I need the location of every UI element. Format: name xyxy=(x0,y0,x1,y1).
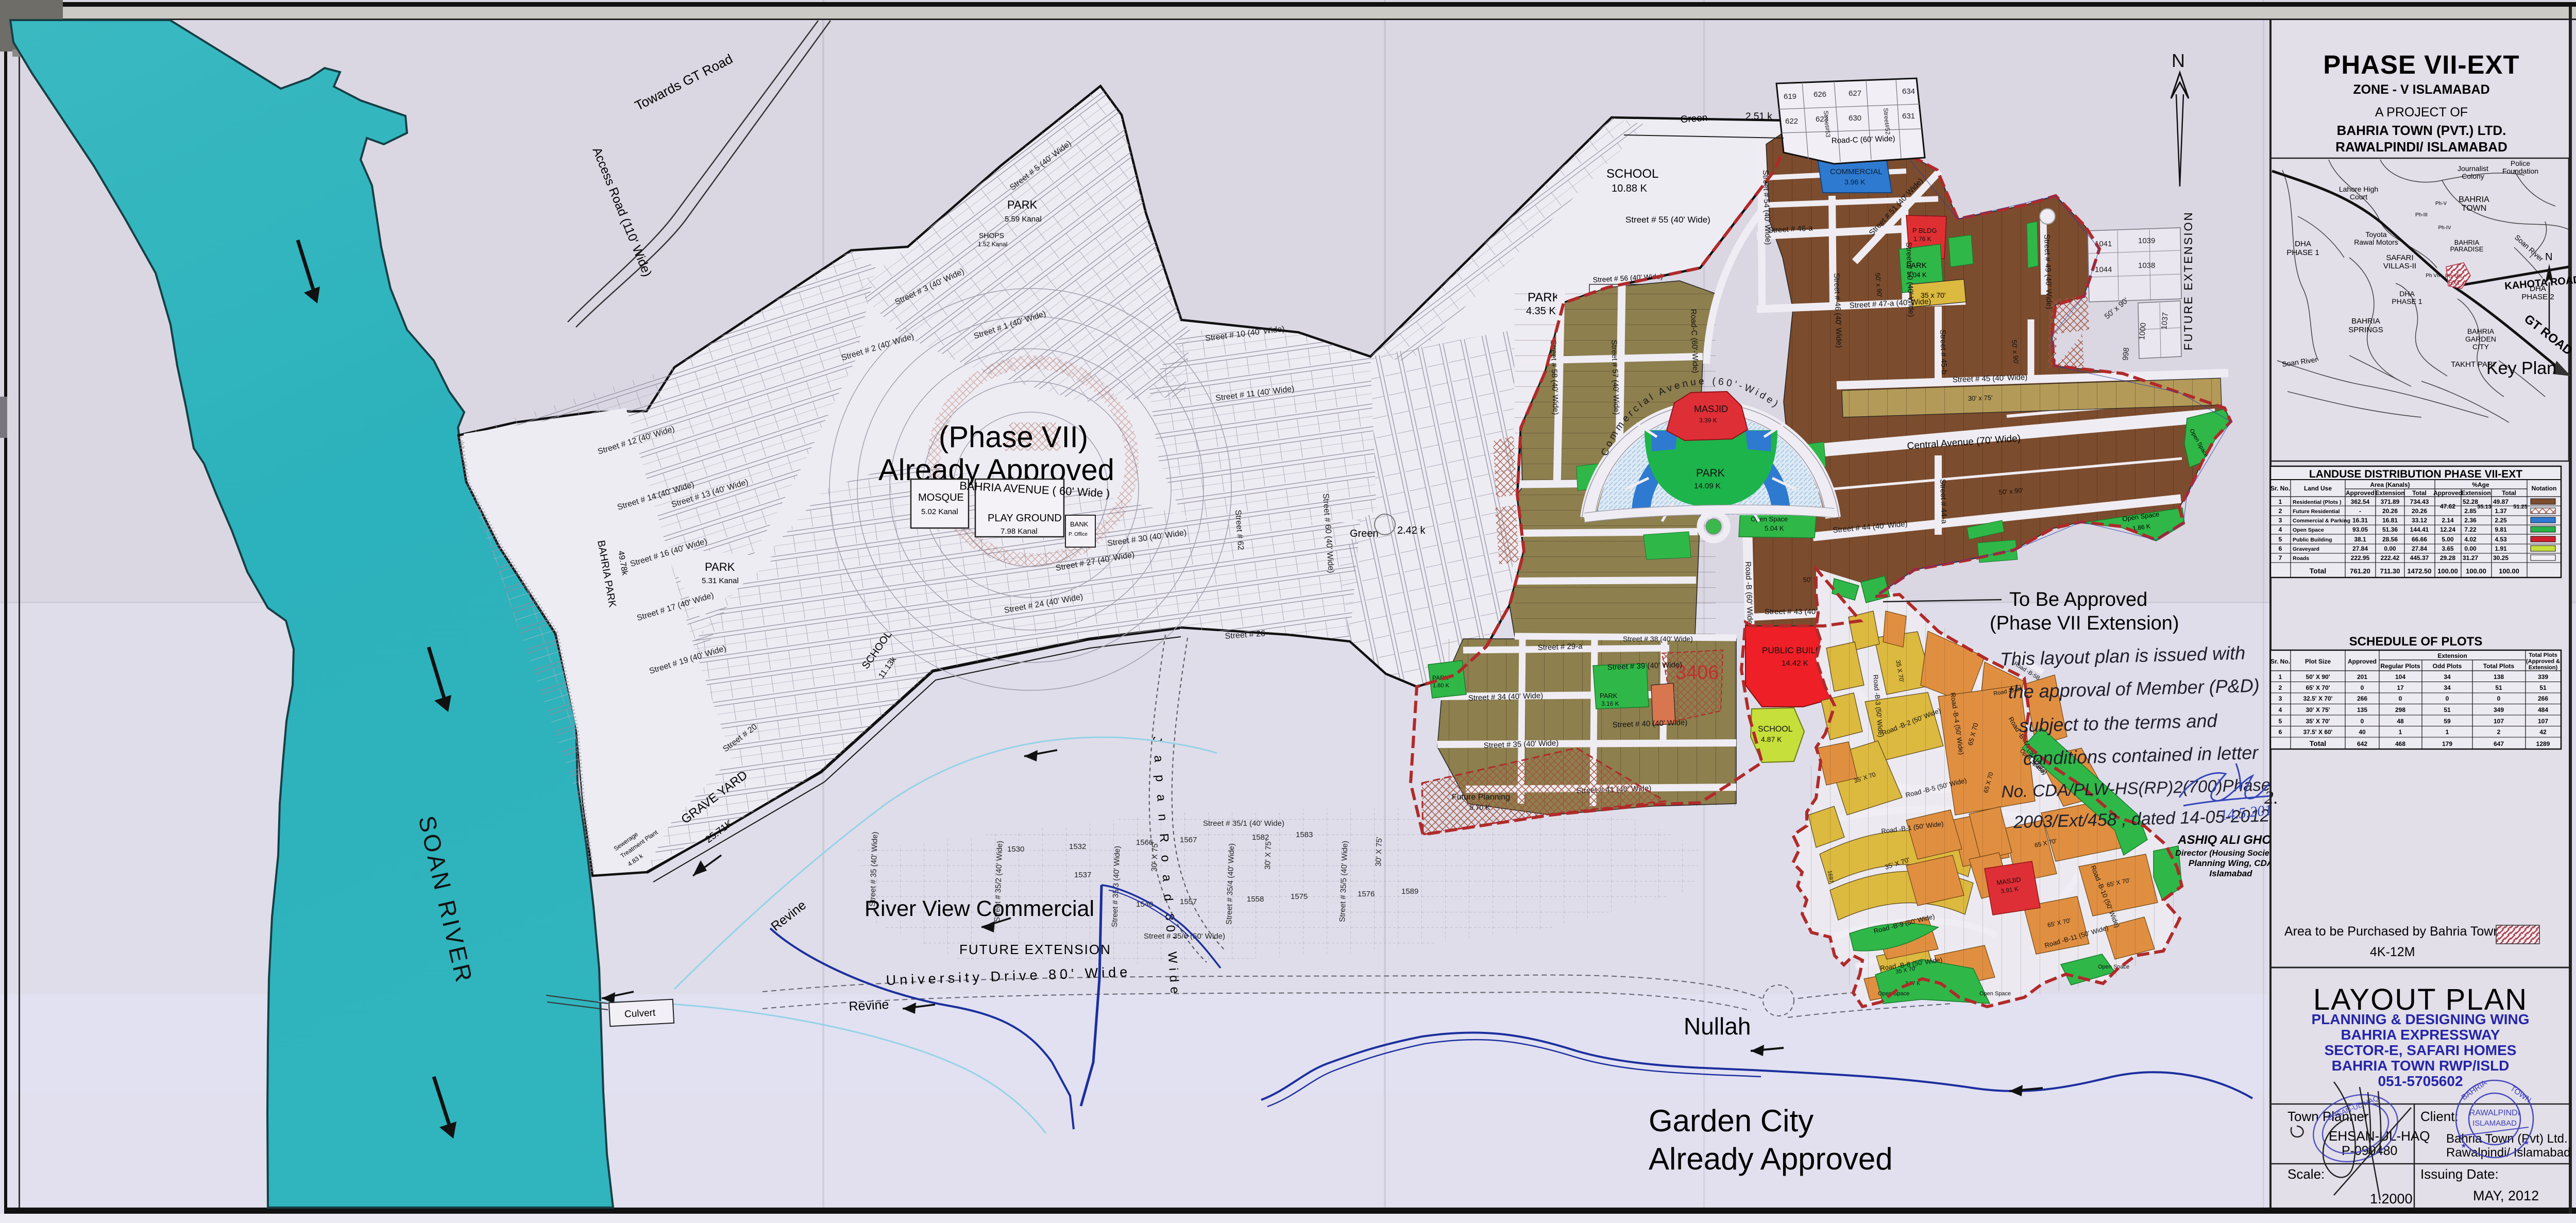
svg-text:SHOPS: SHOPS xyxy=(979,231,1004,240)
svg-text:3.39 K: 3.39 K xyxy=(1699,417,1717,424)
svg-text:1575: 1575 xyxy=(1291,892,1308,901)
svg-text:1: 1 xyxy=(2399,728,2402,736)
svg-text:9.81: 9.81 xyxy=(2495,526,2507,533)
svg-text:104: 104 xyxy=(2395,673,2405,681)
svg-text:Issuing Date:: Issuing Date: xyxy=(2420,1166,2499,1182)
svg-text:Scale:: Scale: xyxy=(2287,1166,2325,1182)
svg-text:622: 622 xyxy=(1785,117,1798,126)
svg-text:42: 42 xyxy=(2539,728,2547,736)
svg-text:Court: Court xyxy=(2350,193,2367,201)
svg-text:20.26: 20.26 xyxy=(2382,507,2398,515)
svg-text:468: 468 xyxy=(2395,740,2405,748)
svg-text:711.30: 711.30 xyxy=(2380,567,2400,575)
svg-text:2.14: 2.14 xyxy=(2442,517,2454,524)
svg-text:Total Plots: Total Plots xyxy=(2483,663,2515,670)
svg-text:371.89: 371.89 xyxy=(2381,498,2400,505)
svg-text:2.36: 2.36 xyxy=(2464,517,2477,524)
svg-text:3.65: 3.65 xyxy=(2442,545,2454,552)
svg-text:93.05: 93.05 xyxy=(2352,526,2368,533)
svg-text:MASJID: MASJID xyxy=(1694,404,1728,414)
svg-text:Plot Size: Plot Size xyxy=(2305,658,2331,665)
svg-text:SCHOOL: SCHOOL xyxy=(1758,725,1793,734)
svg-text:6: 6 xyxy=(2279,545,2282,552)
svg-text:Journalist: Journalist xyxy=(2458,164,2488,173)
svg-text:222.95: 222.95 xyxy=(2351,554,2370,562)
svg-text:★: ★ xyxy=(2523,1139,2530,1146)
svg-text:Rawal Motors: Rawal Motors xyxy=(2354,238,2398,246)
svg-text:17: 17 xyxy=(2397,684,2404,691)
svg-text:GARDEN: GARDEN xyxy=(2465,335,2496,343)
svg-text:Extension): Extension) xyxy=(2529,665,2558,671)
svg-text:Total: Total xyxy=(2412,489,2427,497)
svg-text:1039: 1039 xyxy=(2138,236,2155,245)
svg-text:Street # 45-b: Street # 45-b xyxy=(1938,330,1948,375)
svg-text:10.88 K: 10.88 K xyxy=(1612,183,1648,194)
svg-text:14.42 K: 14.42 K xyxy=(1782,659,1808,668)
svg-text:2: 2 xyxy=(2279,507,2282,515)
svg-text:34: 34 xyxy=(2444,673,2451,681)
svg-text:Extension: Extension xyxy=(2437,652,2467,659)
svg-text:31.27: 31.27 xyxy=(2463,554,2478,562)
svg-text:2.25: 2.25 xyxy=(2495,517,2507,524)
svg-text:RAWALPINDI: RAWALPINDI xyxy=(2469,1109,2520,1117)
svg-text:Ph VII: Ph VII xyxy=(2445,273,2462,280)
svg-text:3.16 K: 3.16 K xyxy=(1601,700,1619,707)
svg-text:107: 107 xyxy=(2494,718,2504,725)
svg-text:30' X 75': 30' X 75' xyxy=(2306,706,2330,714)
svg-text:27.84: 27.84 xyxy=(2412,545,2427,552)
svg-text:(Approved &: (Approved & xyxy=(2526,658,2560,665)
svg-text:SCHEDULE OF PLOTS: SCHEDULE OF PLOTS xyxy=(2349,635,2483,649)
svg-text:0: 0 xyxy=(2497,695,2501,702)
svg-text:7.22: 7.22 xyxy=(2464,526,2477,533)
svg-text:Ph-V: Ph-V xyxy=(2435,201,2447,207)
svg-text:1289: 1289 xyxy=(2536,740,2550,748)
svg-text:-: - xyxy=(2359,507,2361,515)
svg-text:3: 3 xyxy=(2279,517,2282,524)
svg-text:630: 630 xyxy=(1849,114,1861,123)
svg-text:SECTOR-E, SAFARI HOMES: SECTOR-E, SAFARI HOMES xyxy=(2325,1042,2517,1058)
svg-text:P BLDG: P BLDG xyxy=(1912,227,1937,234)
svg-text:TOWN: TOWN xyxy=(2462,204,2487,213)
svg-text:DHA: DHA xyxy=(2295,240,2311,248)
svg-text:647: 647 xyxy=(2494,740,2504,748)
svg-text:29.28: 29.28 xyxy=(2440,554,2455,562)
svg-text:5: 5 xyxy=(2279,536,2282,543)
svg-text:1037: 1037 xyxy=(2160,312,2170,330)
svg-text:1576: 1576 xyxy=(1358,890,1375,898)
svg-text:PARK: PARK xyxy=(1696,467,1725,479)
svg-text:38.1: 38.1 xyxy=(2354,536,2366,543)
svg-text:Approved: Approved xyxy=(2348,658,2377,665)
svg-text:N: N xyxy=(2172,50,2185,71)
svg-text:59: 59 xyxy=(2444,718,2451,725)
svg-text:2.51 k: 2.51 k xyxy=(1745,111,1772,122)
svg-text:PARADISE: PARADISE xyxy=(2450,245,2484,253)
svg-text:Approved: Approved xyxy=(2433,489,2462,497)
svg-text:28.56: 28.56 xyxy=(2382,536,2398,543)
svg-text:634: 634 xyxy=(1902,87,1915,96)
svg-text:VILLAS-II: VILLAS-II xyxy=(2383,262,2416,270)
svg-text:16.81: 16.81 xyxy=(2382,517,2398,524)
svg-text:Garden City: Garden City xyxy=(1649,1103,1814,1138)
svg-text:1532: 1532 xyxy=(1069,842,1086,851)
svg-text:SPRINGS: SPRINGS xyxy=(2348,326,2383,334)
svg-text:1589: 1589 xyxy=(1401,887,1418,896)
svg-text:30.25: 30.25 xyxy=(2493,554,2509,562)
svg-text:FUTURE EXTENSION: FUTURE EXTENSION xyxy=(2182,211,2195,350)
svg-text:2: 2 xyxy=(2279,684,2282,691)
svg-text:EXT.: EXT. xyxy=(2448,279,2461,286)
svg-text:7.98 Kanal: 7.98 Kanal xyxy=(1001,527,1038,536)
svg-text:642: 642 xyxy=(2357,740,2367,748)
svg-text:Regular Plots: Regular Plots xyxy=(2380,663,2420,670)
svg-text:35' X 70': 35' X 70' xyxy=(2306,718,2330,725)
svg-text:12.24: 12.24 xyxy=(2440,526,2455,533)
svg-text:1.80 K: 1.80 K xyxy=(1433,683,1449,689)
svg-text:BAHRIA: BAHRIA xyxy=(2467,327,2495,335)
svg-text:27.84: 27.84 xyxy=(2352,545,2368,552)
svg-text:2.: 2. xyxy=(2264,787,2278,808)
svg-text:32.5' X 70': 32.5' X 70' xyxy=(2303,695,2332,702)
svg-text:5.00: 5.00 xyxy=(2442,536,2454,543)
svg-text:144.41: 144.41 xyxy=(2410,526,2429,533)
svg-text:(Phase VII Extension): (Phase VII Extension) xyxy=(1990,613,2179,634)
svg-text:Area to be Purchased by Bahria: Area to be Purchased by Bahria Town xyxy=(2284,924,2500,939)
svg-text:Client:: Client: xyxy=(2420,1109,2459,1124)
svg-text:1472.50: 1472.50 xyxy=(2408,567,2432,575)
svg-text:0: 0 xyxy=(2399,695,2402,702)
svg-text:1: 1 xyxy=(2279,673,2282,681)
svg-text:Street # 29-a: Street # 29-a xyxy=(1538,642,1583,652)
svg-text:47.62: 47.62 xyxy=(2440,503,2455,510)
svg-text:Nullah: Nullah xyxy=(1684,1013,1751,1040)
svg-text:RAWALPINDI/ ISLAMABAD: RAWALPINDI/ ISLAMABAD xyxy=(2335,139,2507,155)
svg-text:100.00: 100.00 xyxy=(2466,567,2486,575)
svg-text:1.76 K: 1.76 K xyxy=(1913,235,1931,243)
svg-text:7: 7 xyxy=(2279,554,2282,562)
svg-text:1038: 1038 xyxy=(2138,261,2155,270)
svg-text:49.87: 49.87 xyxy=(2493,498,2509,505)
svg-text:1.52 Kanal: 1.52 Kanal xyxy=(978,241,1007,248)
svg-text:33.12: 33.12 xyxy=(2412,517,2427,524)
svg-text:PARK: PARK xyxy=(1600,692,1618,700)
svg-text:Extension: Extension xyxy=(2461,489,2490,497)
svg-text:627: 627 xyxy=(1849,89,1861,98)
svg-text:Graveyard: Graveyard xyxy=(2293,546,2319,552)
svg-text:Notation: Notation xyxy=(2532,485,2557,492)
svg-text:MOSQUE: MOSQUE xyxy=(918,492,964,503)
svg-text:BAHRIA: BAHRIA xyxy=(2459,195,2489,204)
svg-text:Green: Green xyxy=(1680,112,1708,125)
svg-text:4K-12M: 4K-12M xyxy=(2370,945,2415,959)
svg-text:Already Approved: Already Approved xyxy=(1649,1142,1893,1176)
svg-text:Land Use: Land Use xyxy=(2304,485,2332,492)
svg-text:Total: Total xyxy=(2310,739,2326,748)
svg-text:Revine: Revine xyxy=(849,997,889,1014)
svg-text:Colony: Colony xyxy=(2462,172,2484,180)
svg-text:51.36: 51.36 xyxy=(2382,526,2398,533)
svg-text:Ph-IV: Ph-IV xyxy=(2438,225,2451,231)
svg-text:201: 201 xyxy=(2357,673,2367,681)
svg-text:1: 1 xyxy=(2279,498,2282,505)
svg-text:298: 298 xyxy=(2395,706,2405,714)
svg-text:N: N xyxy=(2545,251,2552,263)
svg-text:MAY, 2012: MAY, 2012 xyxy=(2473,1188,2539,1203)
svg-text:52.28: 52.28 xyxy=(2463,498,2478,505)
svg-text:SCHOOL: SCHOOL xyxy=(1606,167,1658,181)
svg-text:To Be Approved: To Be Approved xyxy=(2009,589,2147,610)
svg-text:4.87 K: 4.87 K xyxy=(1761,735,1782,743)
svg-text:River View Commercial: River View Commercial xyxy=(865,896,1094,921)
svg-text:998: 998 xyxy=(2121,347,2131,361)
svg-text:48: 48 xyxy=(2397,718,2404,725)
svg-text:Odd Plots: Odd Plots xyxy=(2433,663,2462,670)
svg-text:55.13: 55.13 xyxy=(2477,504,2492,510)
svg-text:266: 266 xyxy=(2538,695,2548,702)
svg-text:4.02: 4.02 xyxy=(2464,536,2477,543)
svg-text:Sr. No.: Sr. No. xyxy=(2270,658,2290,665)
svg-text:PLAY GROUND: PLAY GROUND xyxy=(988,513,1062,524)
svg-text:(Phase VII): (Phase VII) xyxy=(939,420,1088,454)
svg-text:5.02 Kanal: 5.02 Kanal xyxy=(921,507,958,516)
svg-text:ISLAMABAD: ISLAMABAD xyxy=(2472,1119,2517,1128)
svg-text:PHASE 1: PHASE 1 xyxy=(2286,248,2319,257)
svg-text:1567: 1567 xyxy=(1180,836,1197,844)
svg-text:ZONE - V ISLAMABAD: ZONE - V ISLAMABAD xyxy=(2353,82,2489,97)
svg-text:Future Planning: Future Planning xyxy=(1452,793,1510,802)
svg-text:ASHIQ ALI GHORI: ASHIQ ALI GHORI xyxy=(2177,833,2284,847)
svg-text:266: 266 xyxy=(2357,695,2367,702)
svg-text:4: 4 xyxy=(2279,526,2282,533)
svg-text:349: 349 xyxy=(2494,706,2504,714)
svg-text:BAHRIA EXPRESSWAY: BAHRIA EXPRESSWAY xyxy=(2341,1027,2500,1043)
svg-text:0: 0 xyxy=(2446,695,2449,702)
svg-text:100.00: 100.00 xyxy=(2499,567,2519,575)
svg-text:Foundation: Foundation xyxy=(2502,167,2538,175)
svg-text:★: ★ xyxy=(2461,1142,2467,1149)
svg-text:Total Plots: Total Plots xyxy=(2529,652,2557,658)
svg-text:BAHRIA TOWN (PVT.) LTD.: BAHRIA TOWN (PVT.) LTD. xyxy=(2337,123,2506,138)
svg-text:P. Office: P. Office xyxy=(1069,532,1088,537)
svg-text:PARK: PARK xyxy=(705,560,735,573)
svg-text:Green: Green xyxy=(1350,528,1379,539)
svg-text:51.25: 51.25 xyxy=(2513,504,2528,510)
svg-text:LANDUSE DISTRIBUTION PHASE VII: LANDUSE DISTRIBUTION PHASE VII-EXT xyxy=(2309,468,2522,480)
svg-text:1583: 1583 xyxy=(1296,830,1313,839)
svg-text:Roads: Roads xyxy=(2293,555,2309,562)
svg-text:3: 3 xyxy=(2279,695,2282,702)
svg-text:65' X 70': 65' X 70' xyxy=(2306,684,2330,691)
svg-text:51: 51 xyxy=(2495,684,2502,691)
svg-text:107: 107 xyxy=(2538,718,2548,725)
svg-text:Total: Total xyxy=(2310,567,2326,575)
svg-text:1.91: 1.91 xyxy=(2495,545,2507,552)
svg-text:6: 6 xyxy=(2279,728,2282,736)
svg-text:1.37: 1.37 xyxy=(2495,507,2507,515)
svg-text:40: 40 xyxy=(2359,728,2366,736)
svg-text:222.42: 222.42 xyxy=(2381,554,2400,562)
svg-text:100.00: 100.00 xyxy=(2437,567,2458,575)
svg-text:PLANNING & DESIGNING WING: PLANNING & DESIGNING WING xyxy=(2311,1011,2529,1027)
svg-text:619: 619 xyxy=(1784,92,1797,101)
svg-text:20.26: 20.26 xyxy=(2412,507,2427,515)
svg-text:0.00: 0.00 xyxy=(2464,545,2477,552)
svg-text:0.00: 0.00 xyxy=(2384,545,2396,552)
svg-text:Planning Wing, CDA: Planning Wing, CDA xyxy=(2189,858,2273,868)
svg-text:COMMERCIAL: COMMERCIAL xyxy=(1830,167,1883,176)
svg-text:BAHRIA TOWN RWP/ISLD: BAHRIA TOWN RWP/ISLD xyxy=(2332,1058,2510,1074)
svg-text:484: 484 xyxy=(2538,706,2548,714)
svg-text:PHASE VII-EXT: PHASE VII-EXT xyxy=(2323,50,2519,79)
svg-text:Residential (Plots ): Residential (Plots ) xyxy=(2293,499,2342,505)
svg-text:%Age: %Age xyxy=(2472,481,2489,488)
svg-text:CITY: CITY xyxy=(2472,343,2489,351)
svg-text:1000: 1000 xyxy=(2138,322,2148,341)
svg-text:30' X 75': 30' X 75' xyxy=(1263,840,1273,870)
svg-text:1: 1 xyxy=(2446,728,2449,736)
svg-text:Street # 55 (40' Wide): Street # 55 (40' Wide) xyxy=(1625,215,1710,225)
svg-text:1530: 1530 xyxy=(1007,845,1024,854)
svg-text:FUTURE EXTENSION: FUTURE EXTENSION xyxy=(959,942,1111,957)
svg-text:Police: Police xyxy=(2511,159,2530,167)
svg-text:51: 51 xyxy=(2539,684,2547,691)
svg-text:0: 0 xyxy=(2361,718,2364,725)
svg-text:37.5' X 60': 37.5' X 60' xyxy=(2303,728,2332,736)
svg-text:734.43: 734.43 xyxy=(2410,498,2429,505)
svg-text:5.04 K: 5.04 K xyxy=(1765,524,1784,532)
svg-text:BAHRIA: BAHRIA xyxy=(2351,317,2380,326)
svg-text:5: 5 xyxy=(2279,718,2282,725)
svg-text:Total: Total xyxy=(2502,489,2516,497)
svg-text:3.96 K: 3.96 K xyxy=(1844,178,1866,186)
svg-text:Open Space: Open Space xyxy=(1979,991,2011,997)
svg-text:Lahore High: Lahore High xyxy=(2339,185,2378,193)
svg-text:34: 34 xyxy=(2444,684,2451,691)
svg-text:Public Building: Public Building xyxy=(2293,537,2332,543)
svg-text:362.54: 362.54 xyxy=(2351,498,2370,505)
svg-text:5.59 Kanal: 5.59 Kanal xyxy=(1005,215,1042,224)
svg-text:445.37: 445.37 xyxy=(2410,554,2429,562)
svg-text:30' x 75': 30' x 75' xyxy=(1968,394,1993,402)
svg-text:51: 51 xyxy=(2444,706,2451,714)
svg-text:PARK: PARK xyxy=(1007,198,1038,211)
svg-text:1557: 1557 xyxy=(1180,897,1197,906)
svg-text:2: 2 xyxy=(2497,728,2501,736)
svg-text:179: 179 xyxy=(2442,740,2452,748)
svg-text:Commercial & Parking: Commercial & Parking xyxy=(2293,518,2350,524)
svg-text:14.09 K: 14.09 K xyxy=(1694,482,1721,490)
svg-text:Street # 44-a: Street # 44-a xyxy=(1938,479,1948,524)
svg-text:135: 135 xyxy=(2357,706,2367,714)
svg-text:50' X 90': 50' X 90' xyxy=(2306,673,2330,681)
svg-text:5.70 K: 5.70 K xyxy=(1469,803,1490,811)
svg-text:339: 339 xyxy=(2538,673,2548,681)
svg-text:0: 0 xyxy=(2361,684,2364,691)
svg-text:4: 4 xyxy=(2279,706,2282,714)
svg-text:Area (Kanals): Area (Kanals) xyxy=(2370,481,2410,488)
svg-text:BANK: BANK xyxy=(1070,520,1089,528)
svg-text:DHA: DHA xyxy=(2399,290,2415,298)
svg-text:Street # 35/1 (40' Wide): Street # 35/1 (40' Wide) xyxy=(1203,819,1284,828)
svg-text:761.20: 761.20 xyxy=(2350,567,2370,575)
svg-text:Toyota: Toyota xyxy=(2365,230,2386,239)
svg-text:1537: 1537 xyxy=(1074,871,1091,879)
svg-text:2.85: 2.85 xyxy=(2464,507,2477,515)
svg-text:Ph-III: Ph-III xyxy=(2415,212,2428,218)
svg-text:30' X 75': 30' X 75' xyxy=(1374,837,1384,867)
svg-text:16.31: 16.31 xyxy=(2352,517,2368,524)
svg-text:4.53: 4.53 xyxy=(2495,536,2507,543)
svg-text:1:2000: 1:2000 xyxy=(2370,1191,2413,1207)
svg-text:138: 138 xyxy=(2494,673,2504,681)
svg-text:631: 631 xyxy=(1902,112,1915,121)
svg-text:Future Residential: Future Residential xyxy=(2293,508,2340,515)
svg-text:1558: 1558 xyxy=(1247,895,1264,904)
svg-text:SAFARI: SAFARI xyxy=(2386,253,2413,262)
svg-text:Approved: Approved xyxy=(2346,489,2375,497)
svg-text:Islamabad: Islamabad xyxy=(2209,869,2252,878)
svg-text:66.66: 66.66 xyxy=(2412,536,2427,543)
svg-text:1044: 1044 xyxy=(2095,265,2112,274)
svg-text:Street # 38 (40' Wide): Street # 38 (40' Wide) xyxy=(1623,635,1693,643)
svg-text:A PROJECT OF: A PROJECT OF xyxy=(2375,105,2468,120)
svg-text:626: 626 xyxy=(1814,90,1826,99)
svg-text:Extension: Extension xyxy=(2375,489,2404,497)
svg-text:051-5705602: 051-5705602 xyxy=(2378,1073,2463,1089)
svg-text:5.31 Kanal: 5.31 Kanal xyxy=(702,576,739,585)
svg-text:Sr. No.: Sr. No. xyxy=(2270,485,2290,492)
svg-text:Open Space: Open Space xyxy=(2293,527,2324,533)
svg-text:Culvert: Culvert xyxy=(624,1008,656,1020)
svg-text:2.42 k: 2.42 k xyxy=(1397,525,1426,536)
svg-text:PHASE 1: PHASE 1 xyxy=(2392,297,2422,305)
svg-text:Key Plan: Key Plan xyxy=(2486,359,2556,378)
svg-text:Ph VII: Ph VII xyxy=(2426,273,2439,279)
